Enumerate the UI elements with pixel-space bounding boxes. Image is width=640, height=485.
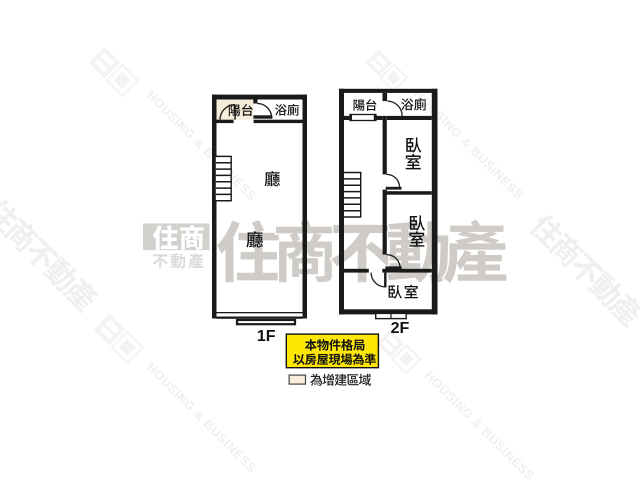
- svg-text:1F: 1F: [257, 328, 276, 345]
- svg-text:2F: 2F: [391, 320, 410, 337]
